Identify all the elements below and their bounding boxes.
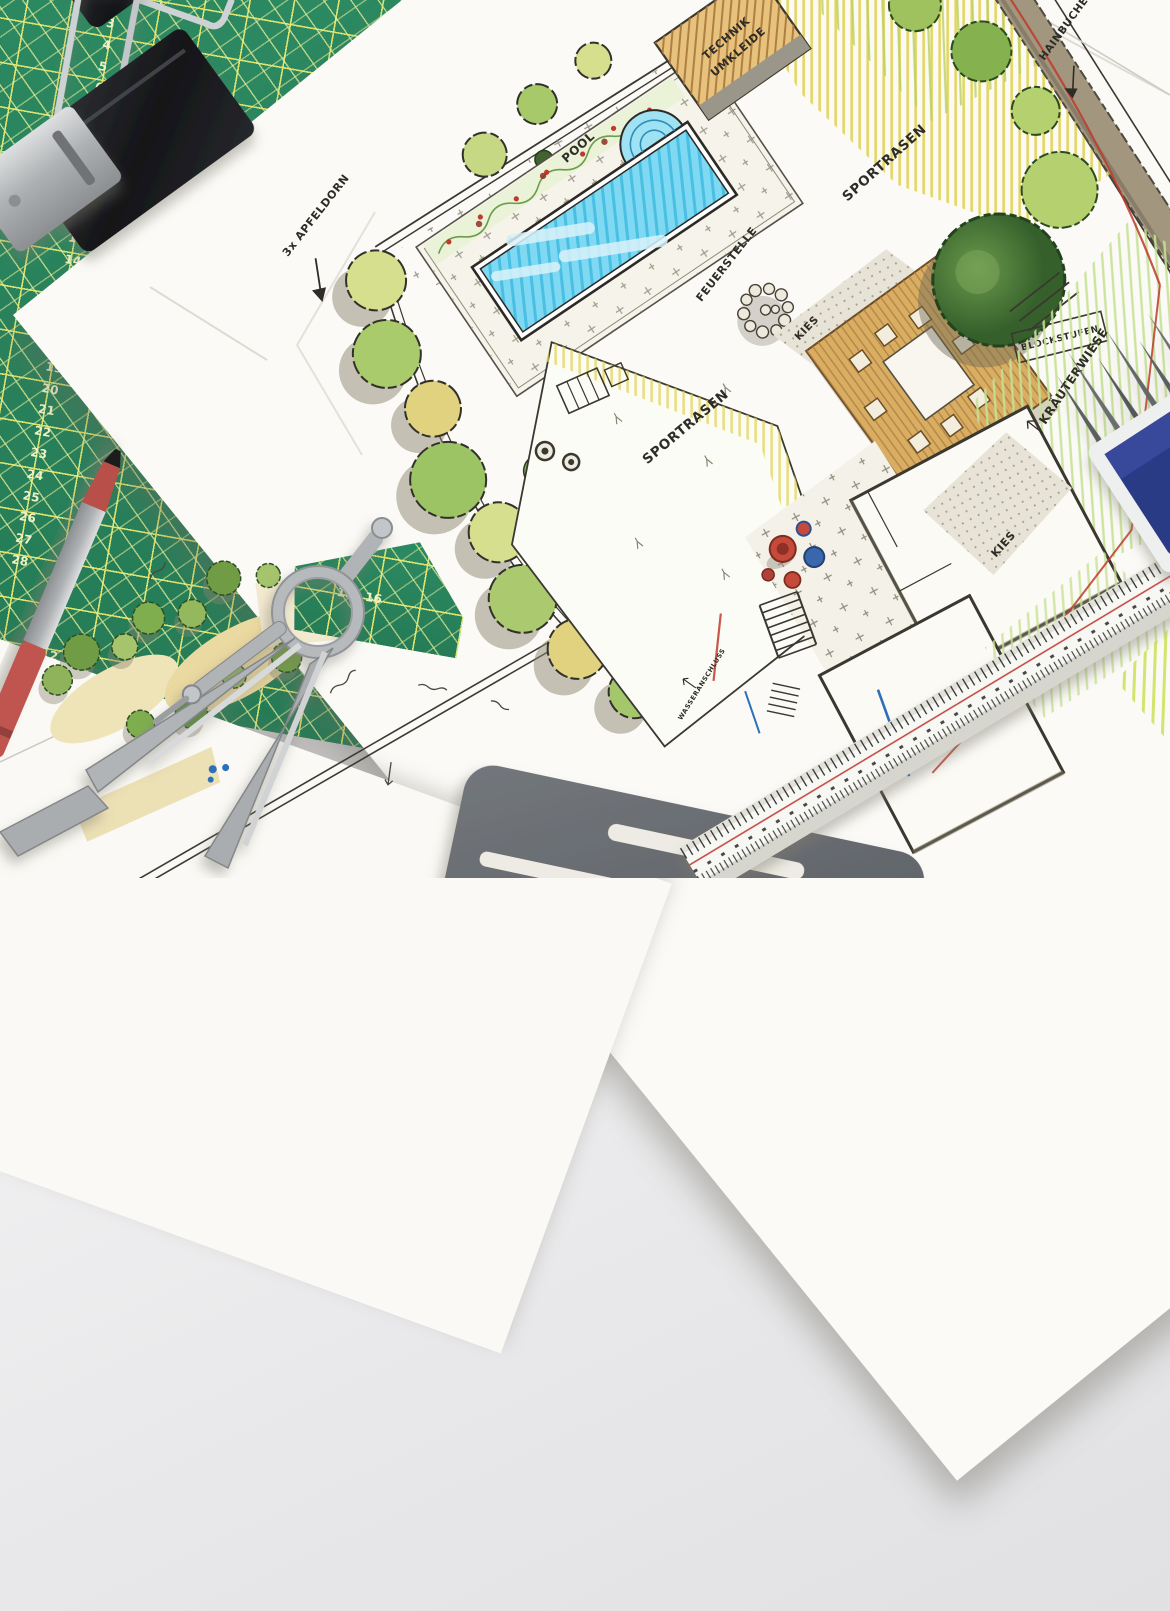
desk-photo: { "scene": { "description": "Hand-drawn … <box>0 0 1170 878</box>
lead-box <box>1035 280 1170 576</box>
compass-arm-piece <box>0 786 108 856</box>
red-pen <box>0 445 130 759</box>
compass-adjuster <box>148 617 290 730</box>
scale-ruler <box>679 539 1170 878</box>
